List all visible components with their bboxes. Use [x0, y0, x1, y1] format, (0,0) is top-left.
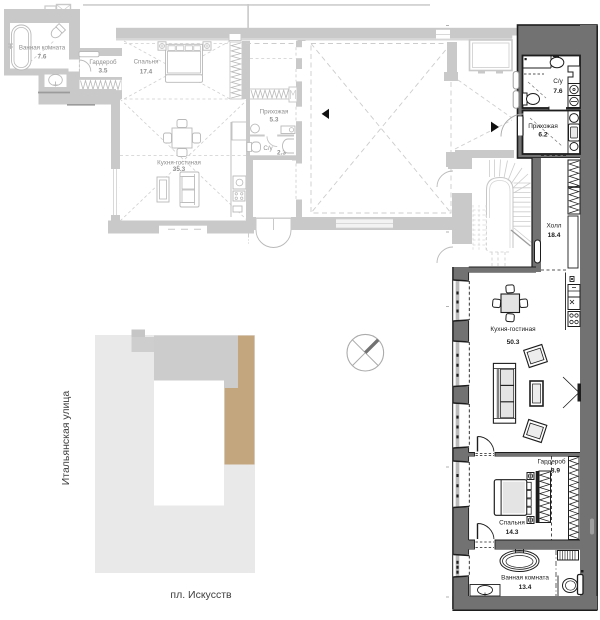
svg-text:Спальня: Спальня: [134, 59, 159, 66]
svg-text:Холл: Холл: [546, 223, 561, 230]
svg-text:Ванная комната: Ванная комната: [501, 575, 549, 582]
svg-text:пл. Искусств: пл. Искусств: [170, 589, 232, 601]
svg-text:Спальня: Спальня: [499, 520, 525, 527]
svg-text:6.2: 6.2: [538, 132, 547, 139]
svg-text:50.3: 50.3: [507, 339, 520, 346]
svg-text:Прихожая: Прихожая: [260, 109, 289, 116]
svg-text:18.4: 18.4: [548, 232, 561, 239]
svg-text:17.4: 17.4: [140, 69, 153, 76]
svg-text:С/у: С/у: [553, 78, 563, 85]
svg-text:Ванная комната: Ванная комната: [19, 45, 66, 52]
svg-text:3.5: 3.5: [99, 68, 108, 75]
svg-text:Прихожая: Прихожая: [528, 123, 558, 130]
svg-text:7.6: 7.6: [38, 54, 47, 61]
svg-text:8.9: 8.9: [551, 468, 560, 475]
svg-text:С/у: С/у: [263, 145, 273, 152]
svg-text:7.6: 7.6: [553, 88, 562, 95]
svg-text:Кухня-гостиная: Кухня-гостиная: [490, 326, 536, 333]
svg-text:Гардероб: Гардероб: [89, 59, 117, 66]
svg-text:Итальянская улица: Итальянская улица: [60, 391, 72, 486]
svg-text:13.4: 13.4: [519, 584, 532, 591]
svg-text:14.3: 14.3: [506, 529, 519, 536]
svg-text:5.3: 5.3: [270, 117, 279, 124]
svg-text:Гардероб: Гардероб: [537, 458, 565, 466]
